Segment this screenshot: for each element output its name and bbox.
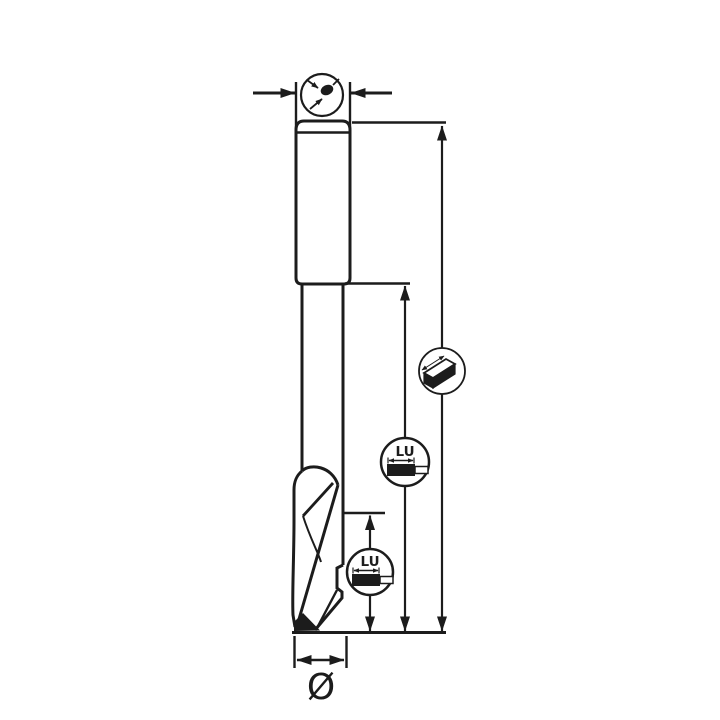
dimension-tip-diameter: Ø — [295, 636, 347, 708]
flute-left-silhouette — [293, 471, 302, 627]
tool-shank-part — [415, 467, 428, 474]
lu-label: LU — [395, 444, 414, 460]
flute-top-hump — [302, 467, 338, 485]
lu-label: LU — [360, 554, 379, 570]
dimension-cutting-length: LU — [344, 513, 393, 631]
cutting-length-icon-upper: LU — [381, 438, 429, 486]
tool-cutting-part — [387, 464, 415, 476]
tool-shank-part — [380, 577, 393, 584]
tip-dark-wedge — [294, 613, 320, 631]
panel-board-icon — [419, 348, 465, 394]
shank-diameter-icon — [301, 74, 343, 116]
cutting-length-icon-lower: LU — [347, 549, 393, 595]
flute-main-spiral-edge — [297, 485, 338, 626]
diameter-symbol: Ø — [307, 667, 335, 708]
flute-right-step — [315, 565, 343, 630]
shank-outline — [296, 121, 350, 284]
router-bit-diagram: LU LU Ø — [0, 0, 720, 720]
flute-inner-line — [303, 516, 321, 562]
technical-drawing-canvas: LU LU Ø — [0, 0, 720, 720]
tool-cutting-part — [352, 574, 380, 586]
flute-second-spiral-edge — [303, 483, 333, 516]
flute-section — [293, 467, 343, 631]
tool-drawing — [293, 121, 350, 631]
